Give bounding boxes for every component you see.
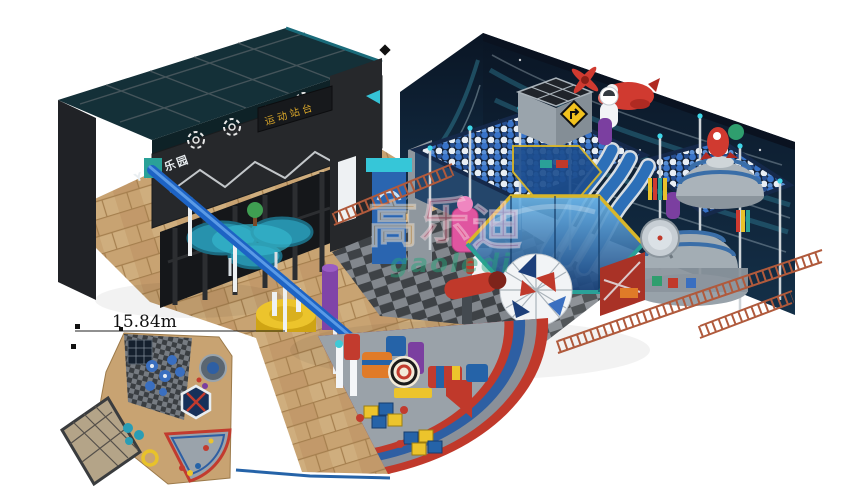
render-canvas: YIC 乐园 运动站台: [0, 0, 850, 500]
watermark-cn-char: 高: [368, 196, 418, 254]
dimension-label: 15.84m: [112, 312, 177, 332]
tower-cyan-cap: [366, 158, 412, 172]
playground-render: YIC 乐园 运动站台: [0, 0, 850, 500]
satellite-dish: [641, 219, 679, 258]
plan-hexagon: [182, 386, 210, 418]
floorplan-inset: 15.84m: [62, 312, 285, 484]
plan-drawing: [62, 333, 232, 484]
purple-punch-bag: [598, 118, 612, 145]
dimension-marker-diamond: [379, 44, 390, 55]
watermark-latin: gaoledi: [390, 249, 512, 279]
watermark-logo: 高 乐 迪 gaoledi: [368, 192, 522, 279]
watermark-cn-char: 乐: [420, 192, 470, 250]
gate-left-wall: [58, 100, 96, 300]
watermark-cn-char: 迪: [472, 198, 522, 256]
orange-pad: [620, 288, 638, 298]
mini-tree: [247, 202, 263, 218]
